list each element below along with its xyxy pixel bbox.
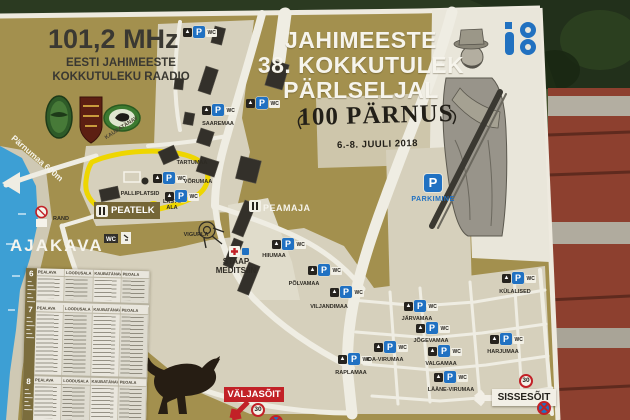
schedule-heading: AJAKAVA [10, 236, 104, 256]
camp-icon-group: ▲PWC [490, 333, 524, 345]
event-title-line3: PÄRLSELJAL [252, 78, 470, 103]
parking-icon: P [282, 238, 294, 250]
svg-text:WC: WC [106, 237, 117, 243]
wc-icon: WC [427, 303, 438, 311]
tent-icon: ▲ [183, 28, 192, 37]
schedule-column-header: KAUBATÄNAV [92, 306, 120, 314]
schedule-entries-cell [36, 276, 65, 301]
camp-area-label: SAAREMAA [196, 121, 240, 127]
wc-icon: WC [439, 325, 450, 333]
tent-icon: ▲ [338, 355, 347, 364]
speed-limit-sign: 30 [251, 403, 265, 417]
wc-icon: WC [457, 374, 468, 382]
schedule-day-section: PEALAVALOODUSALAKAUBATÄNAVPEOALA [33, 376, 147, 420]
no-stopping-sign [537, 401, 551, 415]
schedule-column-header: KAUBATÄNAV [90, 378, 118, 386]
camp-area-label: HARJUMAA [480, 349, 526, 355]
radio-frequency: 101,2 MHz [48, 24, 198, 55]
parking-icon: P [348, 353, 360, 365]
main-tent-label: PEATELK [111, 205, 155, 216]
information-board-photo: WC [0, 0, 630, 420]
anniversary-banner: 100 PÄRNUS [296, 100, 457, 132]
schedule-day: 8 [23, 377, 34, 386]
camp-area-label: VALGAMAA [418, 361, 464, 367]
exit-sign: VÄLJASÕIT [224, 387, 284, 402]
beach-label: RAND [50, 216, 72, 222]
schedule-column-header: PEALAVA [34, 376, 62, 384]
schedule-column-header: PEALAVA [36, 304, 64, 312]
schedule-entries-cell [61, 385, 90, 420]
tent-icon: ▲ [490, 335, 499, 344]
schedule-column-header: PEOALA [119, 378, 147, 386]
parking-icon: P [438, 345, 450, 357]
camp-icon-group: ▲PWC [428, 345, 462, 357]
camp-area-label: KÜLALISED [492, 289, 538, 295]
camp-icon-group: ▲PWC [434, 371, 468, 383]
tent-icon: ▲ [416, 324, 425, 333]
radio-name-line2: KOKKUTULEKU RAADIO [28, 71, 214, 83]
schedule-column-header: PEOALA [122, 271, 150, 279]
camp-area-label: LÄÄNE-VIRUMAA [418, 387, 484, 393]
restaurant-icon [249, 200, 261, 212]
camp-icon-group: ▲PWC [404, 300, 438, 312]
tent-icon: ▲ [330, 288, 339, 297]
tent-icon: ▲ [308, 266, 317, 275]
camp-area-label: HIIUMAA [252, 253, 296, 259]
beach-no-swim-icon [36, 207, 47, 228]
schedule-entries-cell [119, 314, 149, 377]
schedule-entries-cell [89, 386, 118, 420]
tent-icon: ▲ [246, 99, 255, 108]
parking-icon: P [444, 371, 456, 383]
camp-icon-group: ▲PWC [183, 26, 217, 38]
parking-icon: P [340, 286, 352, 298]
parking-icon: P [318, 264, 330, 276]
camp-icon-group: ▲PWC [202, 104, 236, 116]
ball-fields-label: PALLIPLATSID [110, 191, 170, 197]
schedule-day: 6 [26, 269, 37, 278]
parking-icon: P [512, 272, 524, 284]
wc-icon: WC [206, 29, 217, 37]
parking-icon: P [163, 172, 175, 184]
camp-icon-group: ▲PWC [165, 190, 199, 202]
tent-icon: ▲ [202, 106, 211, 115]
parking-icon: P [426, 322, 438, 334]
schedule-entries-cell [91, 314, 121, 377]
schedule-column-header: LOODUSALA [62, 377, 90, 385]
stunt-area-label: VIGURLA [178, 232, 214, 238]
parking-icon: P [256, 97, 268, 109]
camp-icon-group: ▲PWC [246, 97, 280, 109]
tent-icon: ▲ [153, 174, 162, 183]
camp-icon-group: ▲PWC [272, 238, 306, 250]
camp-area-label: PÕLVAMAA [282, 281, 326, 287]
camp-icon-group: ▲PWC [416, 322, 450, 334]
schedule-day-section: PEALAVALOODUSALAKAUBATÄNAVPEOALA [36, 268, 150, 303]
camp-area-label: IDA-VIRUMAA [366, 357, 404, 363]
schedule-day-section: PEALAVALOODUSALAKAUBATÄNAVPEOALA [34, 304, 149, 377]
tent-icon: ▲ [404, 302, 413, 311]
wc-icon: WC [513, 336, 524, 344]
camp-icon-group: ▲PWC [374, 341, 408, 353]
restaurant-icon [96, 205, 108, 217]
parking-icon: P [500, 333, 512, 345]
ejs-emblem [46, 96, 72, 138]
parking-icon: P [175, 190, 187, 202]
camp-area-label: TARTUMAA [170, 160, 214, 166]
tent-icon: ▲ [165, 192, 174, 201]
schedule-day: 7 [25, 305, 36, 314]
event-title-line1: JAHIMEESTE [252, 28, 470, 53]
camp-area-label: RAPLAMAA [328, 370, 374, 376]
wc-icon: WC [525, 275, 536, 283]
parking-icon: P [414, 300, 426, 312]
schedule-column-header: PEOALA [121, 306, 149, 314]
schedule-entries-cell [121, 279, 150, 304]
schedule-entries-cell [62, 313, 92, 376]
wc-icon: WC [397, 344, 408, 352]
schedule-column-header: KAUBATÄNAV [93, 270, 121, 278]
main-tent-sign: PEATELK [94, 202, 160, 219]
main-building-label: PEAMAJA [263, 203, 311, 213]
camp-area-label: JÕGEVAMAA [406, 338, 456, 344]
tent-icon: ▲ [374, 343, 383, 352]
hq-medical-label: STAAP MEDITSIIN [212, 257, 260, 275]
schedule-column-header: LOODUSALA [64, 305, 92, 313]
tent-icon: ▲ [434, 373, 443, 382]
county-shield-emblem [80, 97, 102, 143]
parking-label: PARKIMINE [402, 196, 464, 203]
radio-name-line1: EESTI JAHIMEESTE [32, 57, 210, 69]
schedule-entries-cell [64, 277, 93, 302]
schedule-column-header: PEALAVA [37, 268, 65, 276]
wc-icon: WC [331, 267, 342, 275]
schedule-entries-cell [33, 384, 62, 420]
camp-icon-group: ▲PWC [502, 272, 536, 284]
event-title-line2: 38. KOKKUTULEK [252, 53, 470, 78]
schedule-entries-cell [93, 278, 122, 303]
tent-icon: ▲ [502, 274, 511, 283]
wc-icon: WC [269, 100, 280, 108]
camp-area-label: VILJANDIMAA [300, 304, 358, 310]
wc-icon: WC [353, 289, 364, 297]
red-fence [548, 88, 630, 420]
wc-icon: WC [225, 107, 236, 115]
parking-icon: P [424, 174, 442, 192]
camp-icon-group: ▲PWC [330, 286, 364, 298]
schedule-entries-cell [118, 386, 147, 420]
speed-limit-sign: 30 [519, 374, 533, 388]
event-title: JAHIMEESTE 38. KOKKUTULEK PÄRLSELJAL [252, 28, 470, 103]
wc-icon: WC [451, 348, 462, 356]
parking-icon: P [193, 26, 205, 38]
camp-area-label: VÕRUMAA [178, 179, 218, 185]
tent-icon: ▲ [428, 347, 437, 356]
camp-icon-group: ▲PWC [308, 264, 342, 276]
parking-icon: P [384, 341, 396, 353]
wc-icon: WC [188, 193, 199, 201]
schedule-column-header: LOODUSALA [65, 269, 93, 277]
wc-icon: WC [295, 241, 306, 249]
tent-icon: ▲ [272, 240, 281, 249]
schedule-entries-cell [34, 312, 64, 375]
schedule-table: 678 PEALAVALOODUSALAKAUBATÄNAVPEOALAPEAL… [22, 268, 150, 420]
parking-icon: P [212, 104, 224, 116]
